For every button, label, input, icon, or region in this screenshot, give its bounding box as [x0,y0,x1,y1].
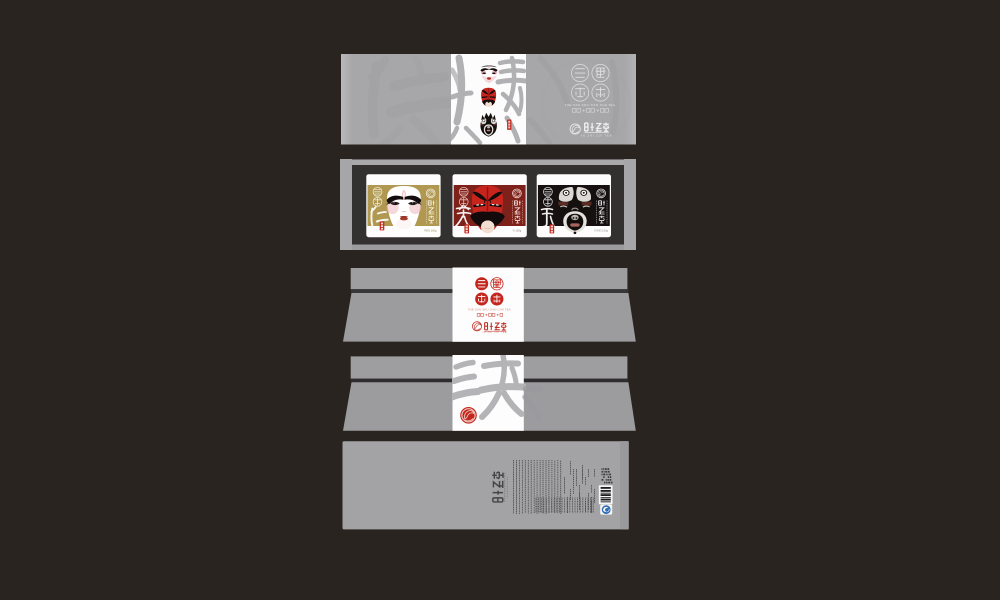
svg-text:THE SAN SHU JIAN CHA TEA: THE SAN SHU JIAN CHA TEA [565,103,616,107]
svg-text:YE ZHI CUI TEA: YE ZHI CUI TEA [482,331,507,334]
svg-text:YE ZHI CUI TEA: YE ZHI CUI TEA [581,134,613,138]
svg-text:REN 100g: REN 100g [425,228,438,232]
svg-text:YI 100g: YI 100g [512,228,521,232]
svg-text:YONG 100g: YONG 100g [594,228,609,232]
svg-text:THE SAN SHU JIAN CHA TEA: THE SAN SHU JIAN CHA TEA [468,308,511,312]
